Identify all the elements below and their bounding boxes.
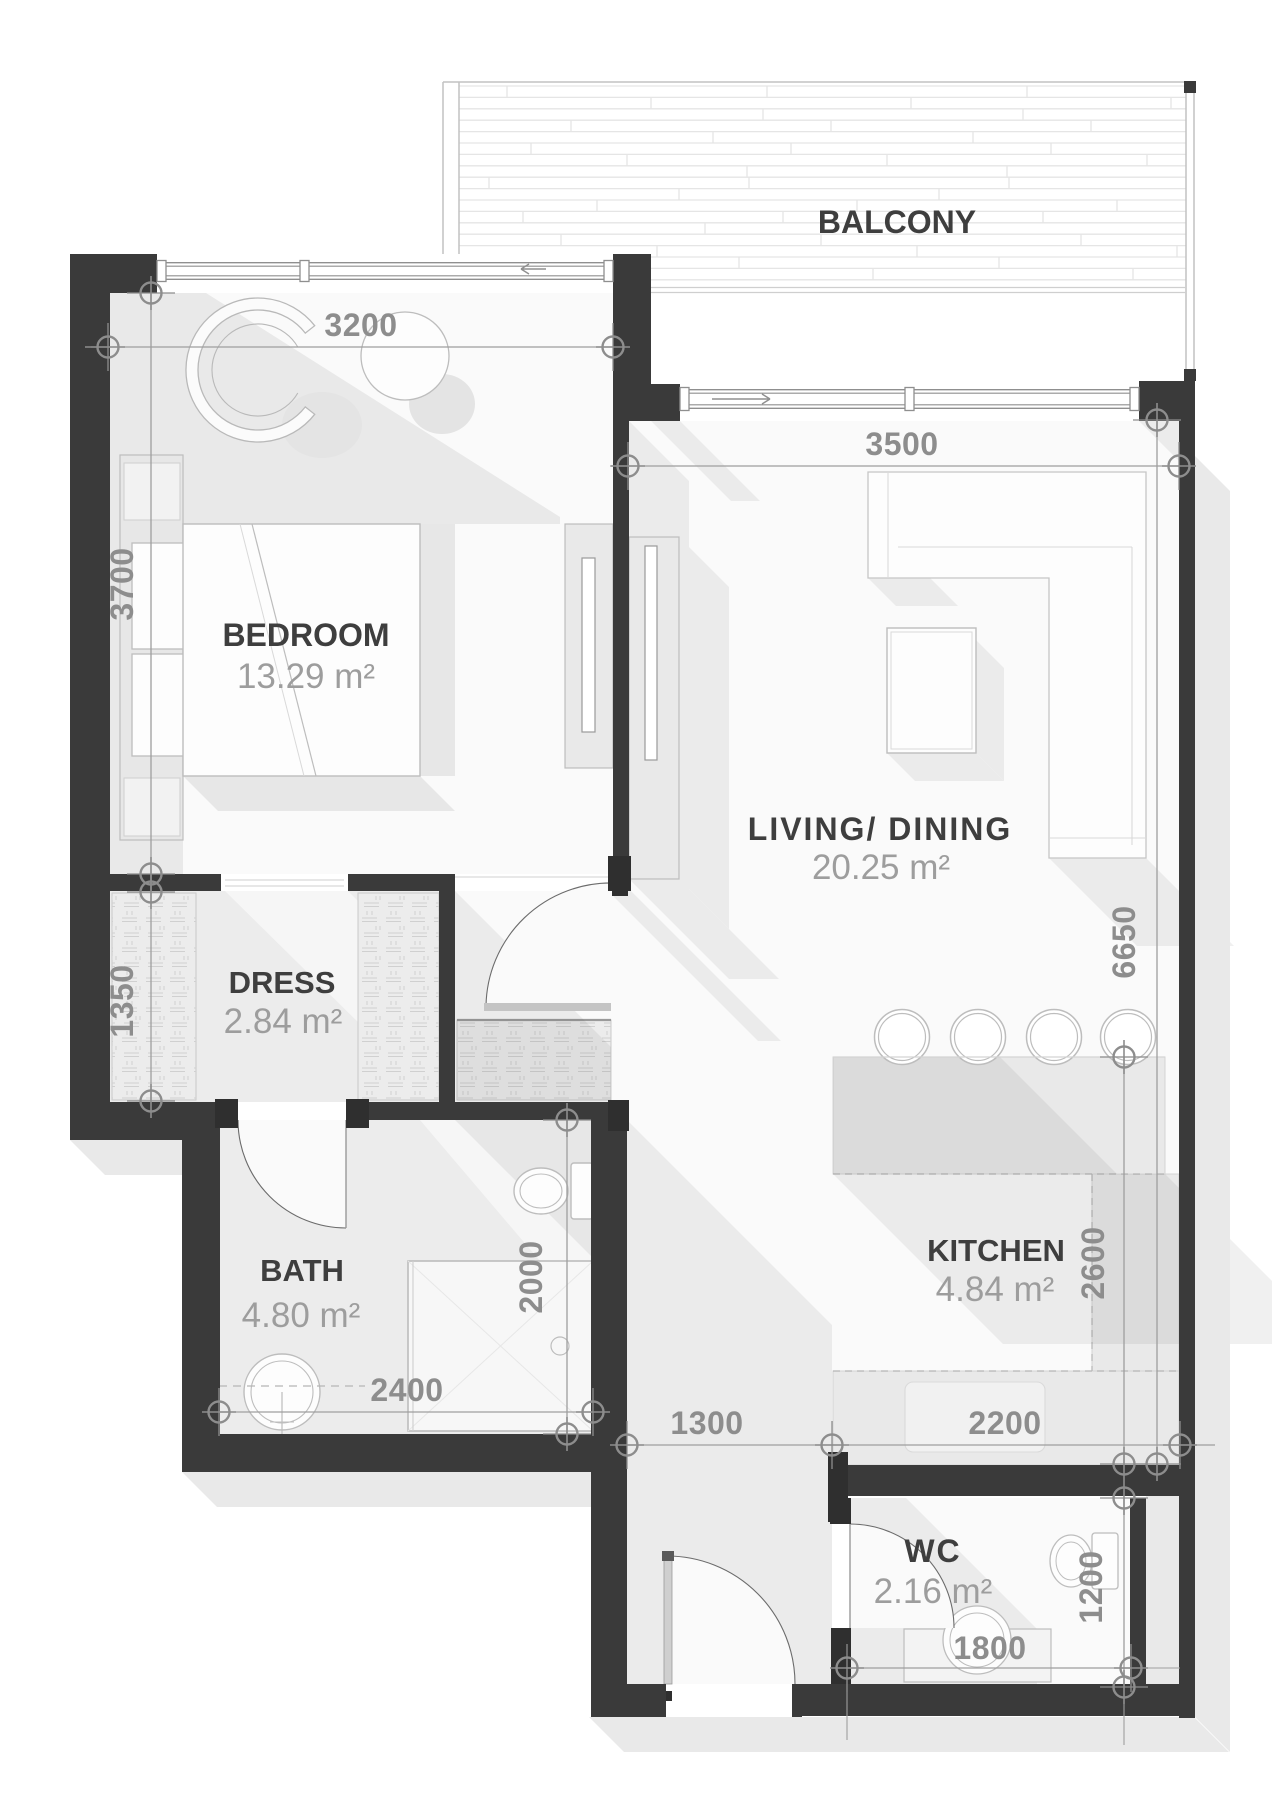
svg-text:DRESS: DRESS [229,965,336,1000]
svg-text:1200: 1200 [1073,1550,1109,1623]
svg-text:3700: 3700 [104,547,140,620]
svg-text:2400: 2400 [370,1372,443,1408]
svg-text:3200: 3200 [324,307,397,343]
svg-text:KITCHEN: KITCHEN [927,1233,1065,1268]
svg-text:1800: 1800 [953,1630,1026,1666]
svg-text:4.84 m²: 4.84 m² [936,1270,1055,1309]
svg-text:20.25 m²: 20.25 m² [812,848,950,887]
svg-text:13.29 m²: 13.29 m² [237,657,375,696]
svg-text:1350: 1350 [104,964,140,1037]
svg-text:3500: 3500 [865,426,938,462]
svg-text:2200: 2200 [968,1405,1041,1441]
svg-text:LIVING/ DINING: LIVING/ DINING [748,811,1012,847]
svg-text:1300: 1300 [670,1405,743,1441]
svg-text:BEDROOM: BEDROOM [222,617,389,653]
svg-text:2.84 m²: 2.84 m² [224,1002,343,1041]
svg-text:4.80 m²: 4.80 m² [242,1296,361,1335]
svg-text:2600: 2600 [1075,1226,1111,1299]
svg-text:2.16 m²: 2.16 m² [874,1572,993,1611]
svg-text:6650: 6650 [1106,905,1142,978]
svg-text:BATH: BATH [260,1253,344,1288]
svg-text:WC: WC [904,1533,961,1569]
svg-text:BALCONY: BALCONY [818,204,976,240]
svg-text:2000: 2000 [513,1240,549,1313]
